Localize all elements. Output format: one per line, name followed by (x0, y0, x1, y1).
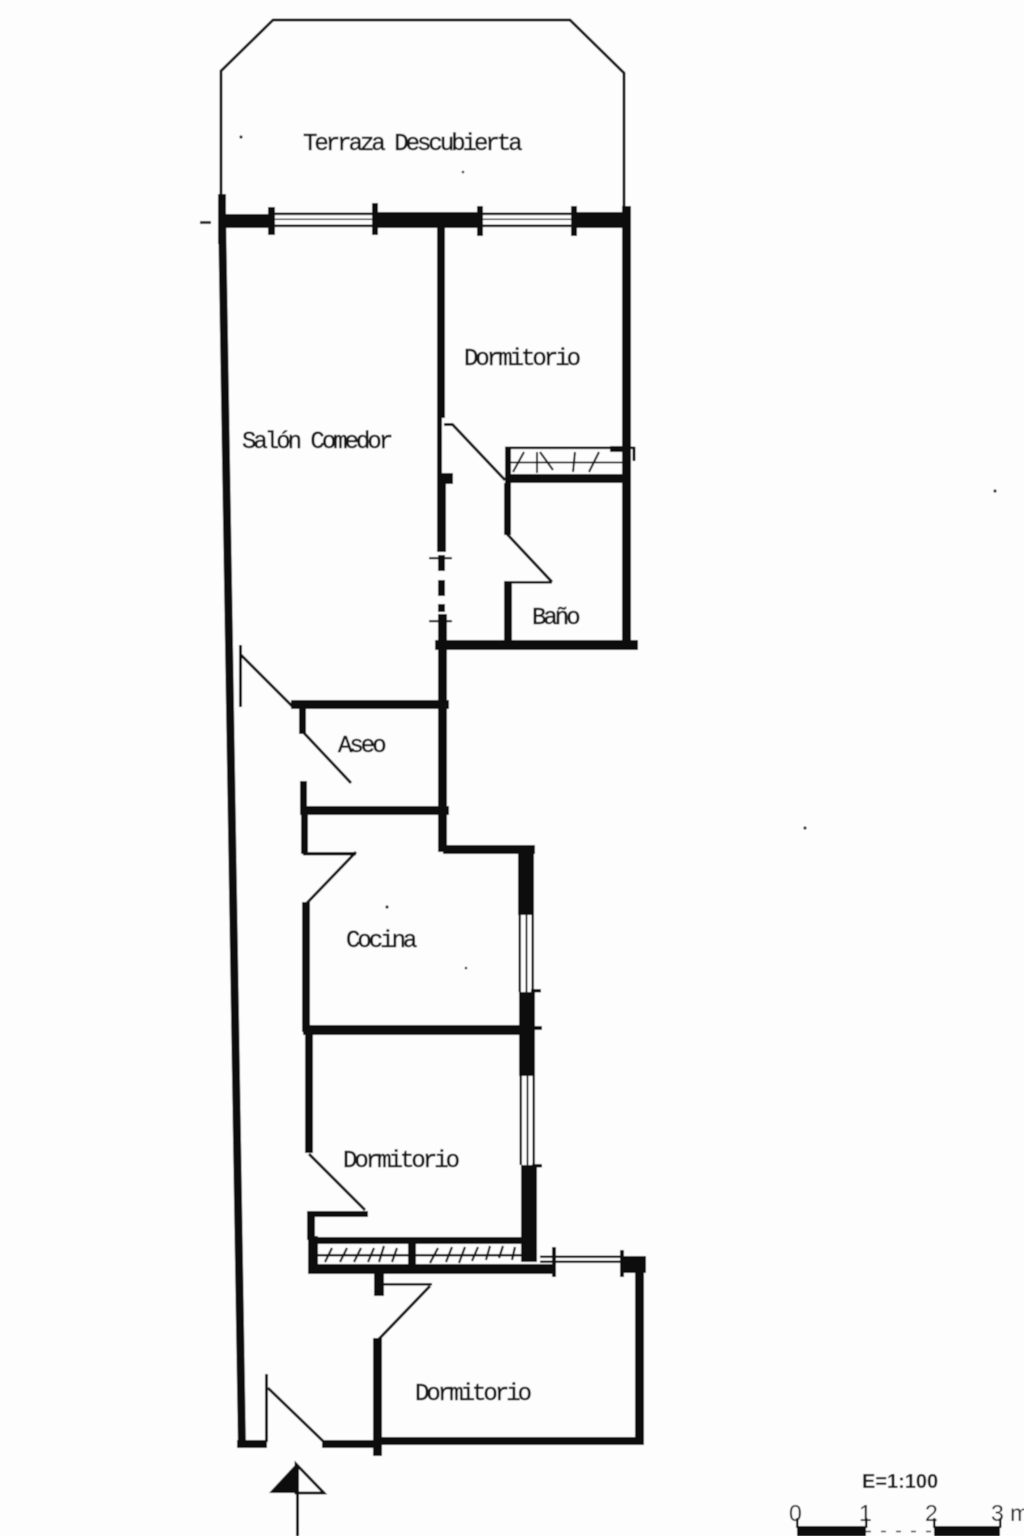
svg-text:Dormitorio: Dormitorio (415, 1381, 531, 1408)
svg-text:3 m: 3 m (991, 1500, 1024, 1526)
svg-text:Dormitorio: Dormitorio (464, 346, 580, 373)
svg-text:Terraza Descubierta: Terraza Descubierta (303, 131, 522, 158)
svg-text:0: 0 (789, 1500, 802, 1526)
svg-text:Baño: Baño (532, 605, 579, 632)
svg-text:Cocina: Cocina (346, 928, 417, 955)
svg-text:Dormitorio: Dormitorio (343, 1148, 459, 1175)
svg-text:2: 2 (925, 1500, 938, 1526)
svg-text:Aseo: Aseo (338, 733, 385, 760)
svg-text:Salón Comedor: Salón Comedor (242, 429, 392, 456)
svg-text:E=1:100: E=1:100 (862, 1471, 938, 1493)
